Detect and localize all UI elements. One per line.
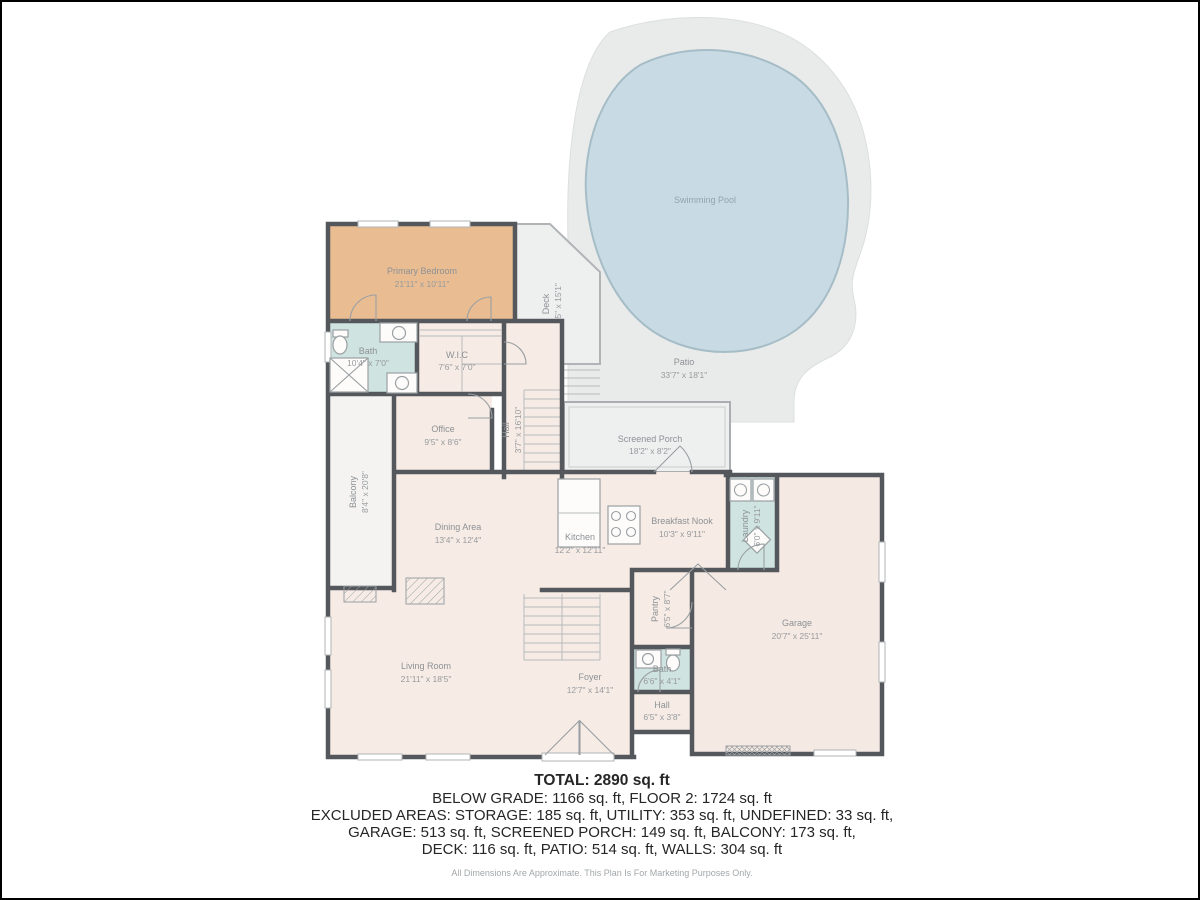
foyer-floor [522,590,632,757]
window [325,617,331,655]
upper-bath-label: Bath [359,346,378,356]
wic-dims: 7'6" x 7'0" [438,362,475,372]
summary-line: BELOW GRADE: 1166 sq. ft, FLOOR 2: 1724 … [2,790,1200,807]
deck-dims: 7'5" x 15'1" [553,283,563,325]
disclaimer-text: All Dimensions Are Approximate. This Pla… [2,868,1200,878]
foyer-dims: 12'7" x 14'1" [567,685,614,695]
garage-label: Garage [782,618,812,628]
window [879,642,885,682]
pool-label: Swimming Pool [674,195,736,205]
summary-line: DECK: 116 sq. ft, PATIO: 514 sq. ft, WAL… [2,841,1200,858]
garage-dims: 20'7" x 25'11" [772,631,823,641]
dining-label: Dining Area [435,522,482,532]
dryer-icon [753,479,774,501]
dining-dims: 13'4" x 12'4" [435,535,482,545]
primary-bedroom-dims: 21'11" x 10'11" [395,279,450,289]
floor-plan-drawing: Swimming Pool Patio 33'7" x 18'1" Deck 7… [2,2,1200,900]
upper-bath-dims: 10'4" x 7'0" [347,358,389,368]
sink-icon [643,654,654,665]
laundry-dims: 6'0" x 9'11" [752,505,762,546]
screened-porch-dims: 18'2" x 8'2" [629,446,671,456]
summary-line: EXCLUDED AREAS: STORAGE: 185 sq. ft, UTI… [2,807,1200,824]
balcony-label: Balcony [348,475,358,508]
window [879,542,885,582]
main-bath-label: Bath [653,664,672,674]
window [426,754,470,760]
window [358,221,398,227]
upper-hall-label: Hall [501,422,511,438]
toilet-tank [666,649,680,655]
primary-bedroom-label: Primary Bedroom [387,266,457,276]
window [358,754,402,760]
entry-door-opening [542,753,614,761]
hearth [344,586,376,602]
pantry-label: Pantry [650,595,660,622]
total-area: TOTAL: 2890 sq. ft [2,772,1200,789]
garage-door [726,746,790,755]
office-dims: 9'5" x 8'6" [424,437,461,447]
balcony-dims: 8'4" x 20'8" [360,471,370,513]
patio-area: Swimming Pool Patio 33'7" x 18'1" [568,17,871,422]
kitchen-label: Kitchen [565,532,595,542]
screened-porch: Screened Porch 18'2" x 8'2" [564,402,730,472]
floor-plan-page: Swimming Pool Patio 33'7" x 18'1" Deck 7… [0,0,1200,900]
upper-hall-dims: 3'7" x 16'10" [513,407,523,454]
living-label: Living Room [401,661,451,671]
main-hall-dims: 6'5" x 3'8" [643,712,680,722]
screened-porch-label: Screened Porch [618,434,683,444]
sink-icon [393,327,406,340]
fireplace [406,578,444,604]
living-dims: 21'11" x 18'5" [401,674,452,684]
nook-label: Breakfast Nook [651,516,713,526]
foyer-label: Foyer [578,672,601,682]
window [814,750,856,756]
main-bath-dims: 6'6" x 4'1" [643,676,680,686]
deck-label: Deck [541,293,551,314]
laundry-label: Laundry [740,509,750,542]
sink-icon [396,377,409,390]
toilet-icon [333,336,347,354]
summary-line: GARAGE: 513 sq. ft, SCREENED PORCH: 149 … [2,824,1200,841]
patio-dims: 33'7" x 18'1" [661,370,708,380]
main-hall-label: Hall [654,700,670,710]
office-label: Office [431,424,454,434]
stove [608,506,640,544]
area-summary: TOTAL: 2890 sq. ft BELOW GRADE: 1166 sq.… [2,772,1200,858]
window [430,221,470,227]
washer-icon [730,479,751,501]
wic-label: W.I.C [446,350,468,360]
nook-dims: 10'3" x 9'11" [659,529,705,539]
window [325,670,331,708]
pantry-dims: 6'5" x 8'7" [662,590,672,627]
patio-label: Patio [674,357,695,367]
kitchen-dims: 12'2" x 12'11" [555,545,606,555]
